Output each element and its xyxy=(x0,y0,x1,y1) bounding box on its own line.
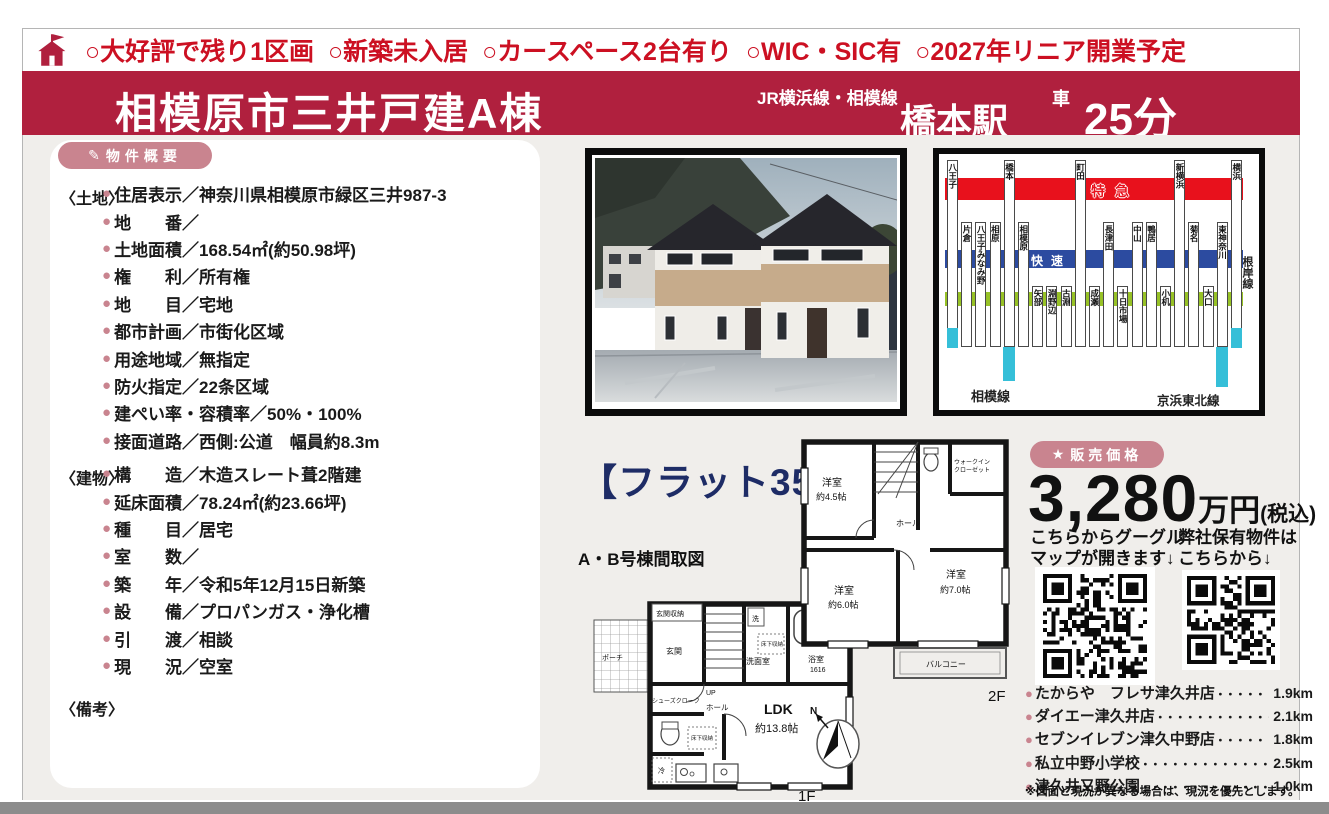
spec-text: 権 利／所有権 xyxy=(114,263,250,288)
svg-text:ウォークイン: ウォークイン xyxy=(954,458,990,466)
banner-item: ○大好評で残り1区画 xyxy=(85,32,314,68)
qr-caption-listings-line1: 弊社保有物件は xyxy=(1178,527,1297,548)
banner-item: ○2027年リニア開業予定 xyxy=(915,32,1186,68)
station-小机: 小机 xyxy=(1160,286,1171,347)
overview-badge: ✎ 物件概要 xyxy=(58,142,212,169)
bullet-icon: ● xyxy=(102,494,111,509)
price-amount: 3,280 xyxy=(1028,460,1198,536)
price-row: 3,280 万円 (税込) xyxy=(1028,460,1316,536)
building-spec-row: ● 現 況／空室 xyxy=(102,652,370,679)
facility-dots: ・・・・・・・・・・・・・・・・ xyxy=(1140,756,1269,772)
banner-item: ○カースペース2台有り xyxy=(482,32,732,68)
bullet-icon: ● xyxy=(102,268,111,283)
svg-text:1F: 1F xyxy=(798,788,816,802)
qr-caption-listings-line2: こちらから↓ xyxy=(1178,548,1297,569)
keihin-line-label: 京浜東北線 xyxy=(1157,390,1220,409)
building-spec-row: ● 築 年／令和5年12月15日新築 xyxy=(102,570,370,597)
spec-text: 接面道路／西側:公道 幅員約8.3m xyxy=(114,428,379,453)
land-spec-row: ● 住居表示／神奈川県相模原市緑区三井987-3 xyxy=(102,180,447,207)
bullet-icon: ● xyxy=(102,214,111,229)
nearby-facilities: ● たからや フレサ津久井店 ・・・・・・・・ 1.9km ● ダイエー津久井店… xyxy=(1025,682,1313,798)
station-相模原: 相模原 xyxy=(1018,222,1029,347)
rail-map: 八王子片倉八王子みなみ野相原橋本相模原矢部淵野辺古淵町田成瀬長津田十日市場中山鴨… xyxy=(943,158,1255,406)
station-十日市場: 十日市場 xyxy=(1117,286,1128,347)
spec-text: 設 備／プロパンガス・浄化槽 xyxy=(114,598,370,623)
station-矢部: 矢部 xyxy=(1032,286,1043,347)
qr-caption-map-line1: こちらからグーグル xyxy=(1030,527,1183,548)
spec-text: 引 渡／相談 xyxy=(114,626,233,651)
bullet-icon: ● xyxy=(102,296,111,311)
svg-text:床下収納: 床下収納 xyxy=(761,640,784,648)
svg-text:玄関: 玄関 xyxy=(666,646,682,656)
spec-text: 地 番／ xyxy=(114,209,199,234)
title-bar: 相模原市三井戸建A棟 JR横浜線・相模線 橋本駅 車 25分 xyxy=(22,71,1300,135)
facility-row: ● ダイエー津久井店 ・・・・・・・・・・・・・・・ 2.1km xyxy=(1025,705,1313,728)
spec-text: 建ぺい率・容積率／50%・100% xyxy=(114,400,362,425)
station-大口: 大口 xyxy=(1203,286,1214,347)
svg-text:約7.0帖: 約7.0帖 xyxy=(940,584,971,595)
bullet-icon: ● xyxy=(102,631,111,646)
svg-text:玄関収納: 玄関収納 xyxy=(656,609,684,618)
building-spec-row: ● 種 目／居宅 xyxy=(102,515,370,542)
overview-card: ✎ 物件概要 〈土地〉 ● 住居表示／神奈川県相模原市緑区三井987-3 ● 地… xyxy=(50,140,540,788)
land-spec-row: ● 防火指定／22条区域 xyxy=(102,372,447,399)
building-spec-row: ● 延床面積／78.24㎡(約23.66坪) xyxy=(102,487,370,514)
svg-text:約13.8帖: 約13.8帖 xyxy=(755,721,798,735)
property-title: 相模原市三井戸建A棟 xyxy=(115,80,543,141)
overview-badge-label: 物件概要 xyxy=(106,146,182,166)
sagami-line-connector xyxy=(1003,347,1015,381)
qr-caption-listings: 弊社保有物件は こちらから↓ xyxy=(1178,527,1297,569)
facility-dots: ・・・・・・・・ xyxy=(1215,686,1269,702)
svg-text:バルコニー: バルコニー xyxy=(926,660,966,669)
bottom-bar xyxy=(0,802,1329,814)
keihin-line-connector xyxy=(1216,347,1228,387)
svg-text:洋室: 洋室 xyxy=(946,568,966,581)
bullet-icon: ● xyxy=(102,548,111,563)
land-spec-row: ● 都市計画／市街化区域 xyxy=(102,317,447,344)
station-相原: 相原 xyxy=(990,222,1001,347)
svg-text:ポーチ: ポーチ xyxy=(602,654,623,662)
spec-text: 都市計画／市街化区域 xyxy=(114,318,284,343)
bullet-icon: ● xyxy=(102,351,111,366)
bullet-icon: ● xyxy=(1025,732,1033,747)
svg-text:LDK: LDK xyxy=(764,701,793,717)
spec-text: 室 数／ xyxy=(114,543,199,568)
flyer-page: ○大好評で残り1区画○新築未入居○カースペース2台有り○WIC・SIC有○202… xyxy=(0,0,1329,814)
compass-icon: N xyxy=(808,702,864,772)
svg-text:N: N xyxy=(810,706,817,717)
bullet-icon: ● xyxy=(102,405,111,420)
svg-text:UP: UP xyxy=(706,690,716,697)
bullet-icon: ● xyxy=(102,323,111,338)
spec-text: 防火指定／22条区域 xyxy=(114,373,269,398)
building-spec-list: ● 構 造／木造スレート葺2階建 ● 延床面積／78.24㎡(約23.66坪) … xyxy=(102,460,370,679)
bullet-icon: ● xyxy=(102,576,111,591)
qr-caption-map-line2: マップが開きます↓ xyxy=(1030,548,1183,569)
land-spec-row: ● 地 目／宅地 xyxy=(102,290,447,317)
land-spec-row: ● 接面道路／西側:公道 幅員約8.3m xyxy=(102,427,447,454)
rail-line-label: JR横浜線・相模線 xyxy=(757,84,898,109)
pencil-icon: ✎ xyxy=(88,147,100,164)
spec-text: 現 況／空室 xyxy=(114,653,233,678)
bullet-icon: ● xyxy=(102,433,111,448)
facility-name: 私立中野小学校 xyxy=(1035,752,1140,773)
rapid-label: 快速 xyxy=(1031,252,1071,269)
qr-code-listings xyxy=(1182,570,1280,670)
bullet-icon: ● xyxy=(102,378,111,393)
land-spec-row: ● 土地面積／168.54㎡(約50.98坪) xyxy=(102,235,447,262)
bullet-icon: ● xyxy=(102,186,111,201)
station-古淵: 古淵 xyxy=(1061,286,1072,347)
station-鴨居: 鴨居 xyxy=(1146,222,1157,347)
top-banner: ○大好評で残り1区画○新築未入居○カースペース2台有り○WIC・SIC有○202… xyxy=(22,28,1300,71)
svg-text:2F: 2F xyxy=(988,688,1006,705)
banner-items: ○大好評で残り1区画○新築未入居○カースペース2台有り○WIC・SIC有○202… xyxy=(85,32,1186,68)
land-spec-row: ● 権 利／所有権 xyxy=(102,262,447,289)
facility-dots: ・・・・・・・・・・・・・・・ xyxy=(1155,709,1270,725)
station-片倉: 片倉 xyxy=(961,222,972,347)
transfer-mark xyxy=(1231,328,1242,348)
land-spec-row: ● 地 番／ xyxy=(102,207,447,234)
floorplan-2f: ウォークイン クローゼット 洋室 約4.5帖 ホール 洋室 約6.0帖 洋室 約… xyxy=(798,438,1012,706)
spec-text: 構 造／木造スレート葺2階建 xyxy=(114,461,361,486)
facility-distance: 2.1km xyxy=(1269,708,1313,724)
bullet-icon: ● xyxy=(102,521,111,536)
land-spec-row: ● 建ぺい率・容積率／50%・100% xyxy=(102,399,447,426)
land-spec-list: ● 住居表示／神奈川県相模原市緑区三井987-3 ● 地 番／ ● 土地面積／1… xyxy=(102,180,447,454)
house-flag-icon xyxy=(35,32,71,68)
station-淵野辺: 淵野辺 xyxy=(1046,286,1057,347)
svg-text:洋室: 洋室 xyxy=(822,476,842,489)
banner-item: ○新築未入居 xyxy=(328,32,468,68)
disclaimer-note: ※図面と現況が異なる場合は、現況を優先とします。 xyxy=(1025,783,1300,799)
station-長津田: 長津田 xyxy=(1103,222,1114,347)
facility-row: ● セブンイレブン津久中野店 ・・・・・・・・・ 1.8km xyxy=(1025,728,1313,751)
price-unit: 万円 xyxy=(1198,485,1260,530)
remarks-section-label: 〈備考〉 xyxy=(60,696,124,720)
svg-text:床下収納: 床下収納 xyxy=(691,734,714,742)
price-tax-note: (税込) xyxy=(1260,498,1316,528)
facility-distance: 1.8km xyxy=(1269,731,1313,747)
spec-text: 延床面積／78.24㎡(約23.66坪) xyxy=(114,489,346,514)
station-町田: 町田 xyxy=(1075,160,1086,347)
transport-mode: 車 xyxy=(1052,85,1070,111)
building-spec-row: ● 構 造／木造スレート葺2階建 xyxy=(102,460,370,487)
svg-text:約4.5帖: 約4.5帖 xyxy=(816,491,847,502)
station-八王子: 八王子 xyxy=(947,160,958,347)
property-photo-image xyxy=(595,158,897,402)
bullet-icon: ● xyxy=(1025,686,1033,701)
land-spec-row: ● 用途地域／無指定 xyxy=(102,344,447,371)
svg-text:洋室: 洋室 xyxy=(834,584,854,597)
facility-distance: 1.9km xyxy=(1269,685,1313,701)
facility-row: ● たからや フレサ津久井店 ・・・・・・・・ 1.9km xyxy=(1025,682,1313,705)
spec-text: 土地面積／168.54㎡(約50.98坪) xyxy=(114,236,356,261)
svg-text:洗面室: 洗面室 xyxy=(746,656,770,666)
qr-code-map xyxy=(1035,567,1155,685)
spec-text: 住居表示／神奈川県相模原市緑区三井987-3 xyxy=(114,181,446,206)
bullet-icon: ● xyxy=(1025,709,1033,724)
svg-text:約6.0帖: 約6.0帖 xyxy=(828,599,859,610)
spec-text: 用途地域／無指定 xyxy=(114,346,250,371)
building-spec-row: ● 引 渡／相談 xyxy=(102,624,370,651)
station-菊名: 菊名 xyxy=(1188,222,1199,347)
bullet-icon: ● xyxy=(102,603,111,618)
svg-text:ホール: ホール xyxy=(896,519,920,528)
station-横浜: 横浜 xyxy=(1231,160,1242,347)
station-新横浜: 新横浜 xyxy=(1174,160,1185,347)
svg-text:冷: 冷 xyxy=(658,766,665,775)
station-成瀬: 成瀬 xyxy=(1089,286,1100,347)
facility-name: ダイエー津久井店 xyxy=(1035,705,1155,726)
building-spec-row: ● 室 数／ xyxy=(102,542,370,569)
spec-text: 種 目／居宅 xyxy=(114,516,233,541)
svg-text:クローゼット: クローゼット xyxy=(954,466,990,474)
station-中山: 中山 xyxy=(1132,222,1143,347)
bullet-icon: ● xyxy=(102,658,111,673)
facility-distance: 2.5km xyxy=(1269,755,1313,771)
bullet-icon: ● xyxy=(102,466,111,481)
facility-name: セブンイレブン津久中野店 xyxy=(1035,728,1215,749)
station-橋本: 橋本 xyxy=(1004,160,1015,347)
property-photo xyxy=(585,148,907,416)
facility-dots: ・・・・・・・・・ xyxy=(1215,732,1269,748)
transfer-mark xyxy=(947,328,958,348)
building-spec-row: ● 設 備／プロパンガス・浄化槽 xyxy=(102,597,370,624)
qr-caption-map: こちらからグーグル マップが開きます↓ xyxy=(1030,527,1183,569)
bullet-icon: ● xyxy=(1025,756,1033,771)
rail-map-card: 八王子片倉八王子みなみ野相原橋本相模原矢部淵野辺古淵町田成瀬長津田十日市場中山鴨… xyxy=(933,148,1265,416)
svg-text:洗: 洗 xyxy=(752,614,759,623)
spec-text: 築 年／令和5年12月15日新築 xyxy=(114,571,365,596)
facility-name: たからや フレサ津久井店 xyxy=(1035,682,1215,703)
negishi-line-label: 根岸線 xyxy=(1239,256,1255,289)
station-八王子みなみ野: 八王子みなみ野 xyxy=(975,222,986,347)
bullet-icon: ● xyxy=(102,241,111,256)
station-東神奈川: 東神奈川 xyxy=(1217,222,1228,347)
sagami-line-label: 相模線 xyxy=(971,386,1010,405)
svg-text:ホール: ホール xyxy=(706,703,729,712)
express-label: 特急 xyxy=(1091,181,1139,201)
spec-text: 地 目／宅地 xyxy=(114,291,233,316)
banner-item: ○WIC・SIC有 xyxy=(746,32,901,68)
facility-row: ● 私立中野小学校 ・・・・・・・・・・・・・・・・ 2.5km xyxy=(1025,752,1313,775)
